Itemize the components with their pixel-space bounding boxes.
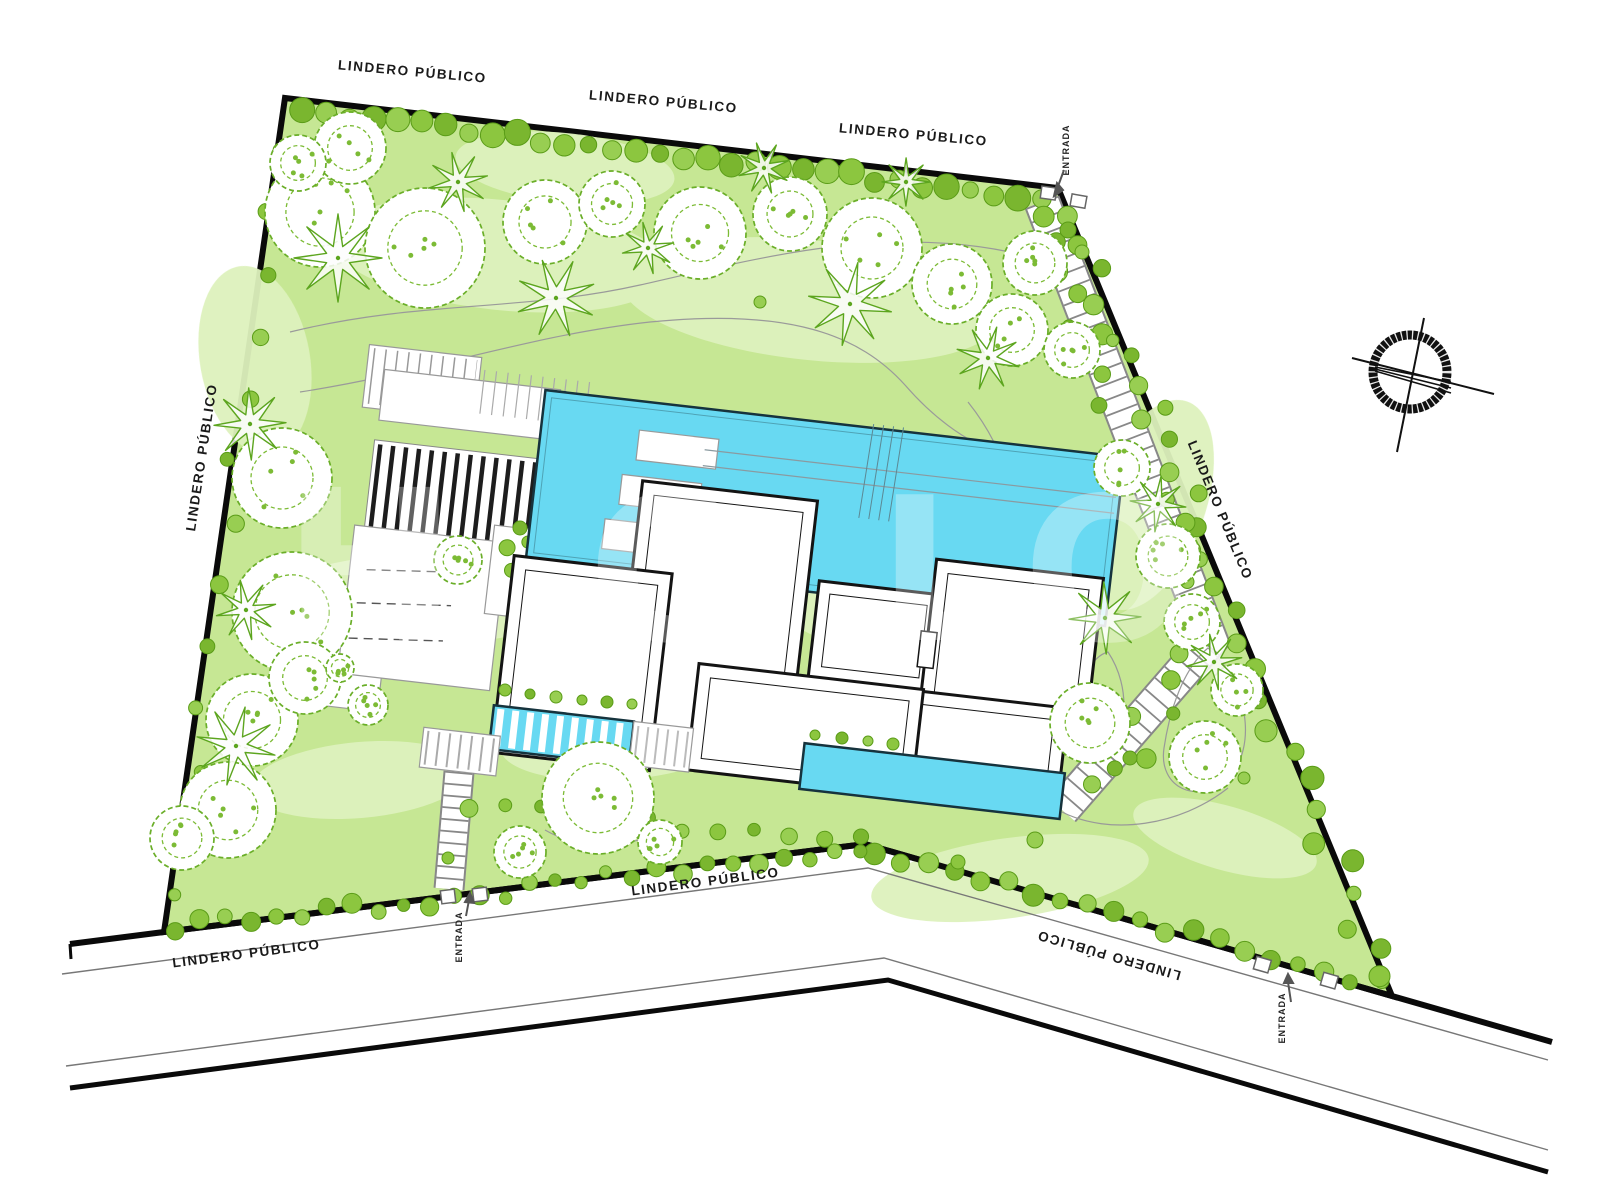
- boundary-label-top-left: LINDERO PÚBLICO: [337, 57, 487, 85]
- road-edge-far: [70, 980, 1548, 1172]
- entrance-label-south-west: ENTRADA: [454, 912, 464, 963]
- boundary-label-top-right: LINDERO PÚBLICO: [838, 120, 988, 148]
- entrance-label-south-east: ENTRADA: [1277, 993, 1287, 1044]
- site-plan-page: H O LOV LINDERO PÚBLICO LINDERO PÚBLICO …: [0, 0, 1601, 1201]
- entrance-label-north-east: ENTRADA: [1061, 125, 1071, 176]
- north-compass-icon: [1352, 318, 1494, 452]
- watermark-fragment-1: H: [282, 445, 458, 690]
- site-plan-drawing: H O LOV LINDERO PÚBLICO LINDERO PÚBLICO …: [0, 0, 1601, 1201]
- road-edge-cap: [70, 944, 71, 959]
- boundary-label-bottom-left: LINDERO PÚBLICO: [171, 937, 321, 971]
- boundary-label-top-center: LINDERO PÚBLICO: [588, 87, 738, 115]
- south-path-steps: [449, 772, 459, 889]
- boundary-label-left: LINDERO PÚBLICO: [183, 382, 220, 532]
- watermark-fragment-2: O LOV: [588, 455, 1392, 688]
